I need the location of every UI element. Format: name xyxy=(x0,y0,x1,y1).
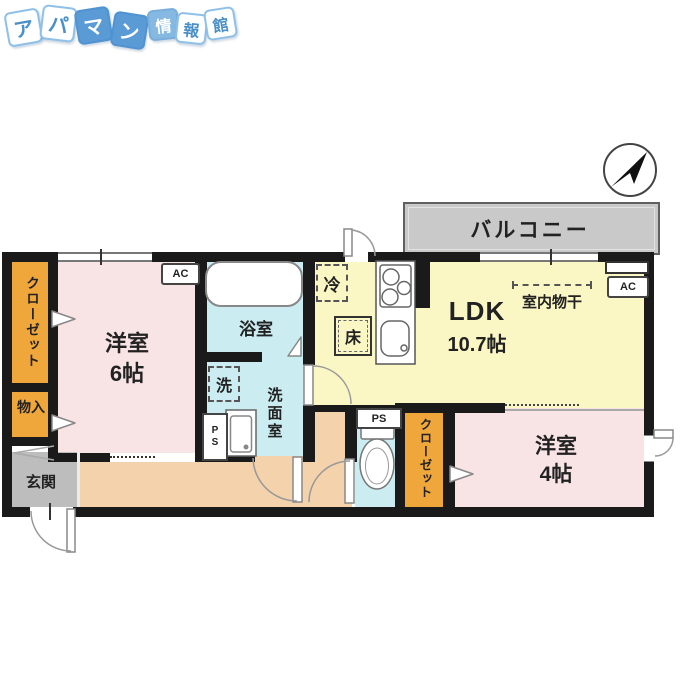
door-leaf-icon xyxy=(67,229,673,552)
floor-hatch-label: 床 xyxy=(345,324,361,348)
closet-left-label: クローゼット xyxy=(17,262,45,382)
washer-space: 洗 xyxy=(208,366,240,402)
kitchen-icon xyxy=(376,261,415,364)
ac-box-ldk: AC xyxy=(607,276,649,298)
drying-rail-end xyxy=(512,281,514,289)
ldk-label: LDK xyxy=(429,296,525,326)
bathtub-icon xyxy=(206,262,302,306)
floor-hatch-inner: 床 xyxy=(338,320,368,352)
ldk-size-label: 10.7帖 xyxy=(425,329,529,355)
washbasin-icon xyxy=(226,410,256,456)
entrance-label: 玄関 xyxy=(14,470,68,492)
ac-label: AC xyxy=(620,281,636,293)
drying-rail-end xyxy=(590,281,592,289)
storage-label: 物入 xyxy=(12,398,50,416)
drying-rail-icon xyxy=(512,284,592,286)
ps-label: PS xyxy=(210,425,221,449)
room6-label: 洋室 xyxy=(89,327,165,357)
floorplan-image: ア パ マ ン 情 報 館 バルコニー xyxy=(0,0,700,700)
fridge-label: 冷 xyxy=(324,271,341,296)
toilet-icon xyxy=(360,426,394,489)
entrance-door-lines xyxy=(14,446,54,460)
north-arrow-icon xyxy=(611,152,647,187)
ps-label: PS xyxy=(372,413,387,425)
room4-size-label: 4帖 xyxy=(518,459,594,487)
fridge-space: 冷 xyxy=(316,264,348,302)
bath-label: 浴室 xyxy=(227,316,285,338)
room6-size-label: 6帖 xyxy=(89,357,165,387)
floor-hatch: 床 xyxy=(334,316,372,356)
ac-box-room6: AC xyxy=(161,263,200,285)
washroom-label: 洗面室 xyxy=(261,372,287,456)
washer-label: 洗 xyxy=(216,372,232,396)
ps-box-toilet: PS xyxy=(356,408,402,429)
closet-right-label: クローゼット xyxy=(411,411,439,505)
ac-label: AC xyxy=(173,268,189,280)
room4-label: 洋室 xyxy=(518,431,594,459)
ps-box-washroom: PS xyxy=(202,413,228,461)
